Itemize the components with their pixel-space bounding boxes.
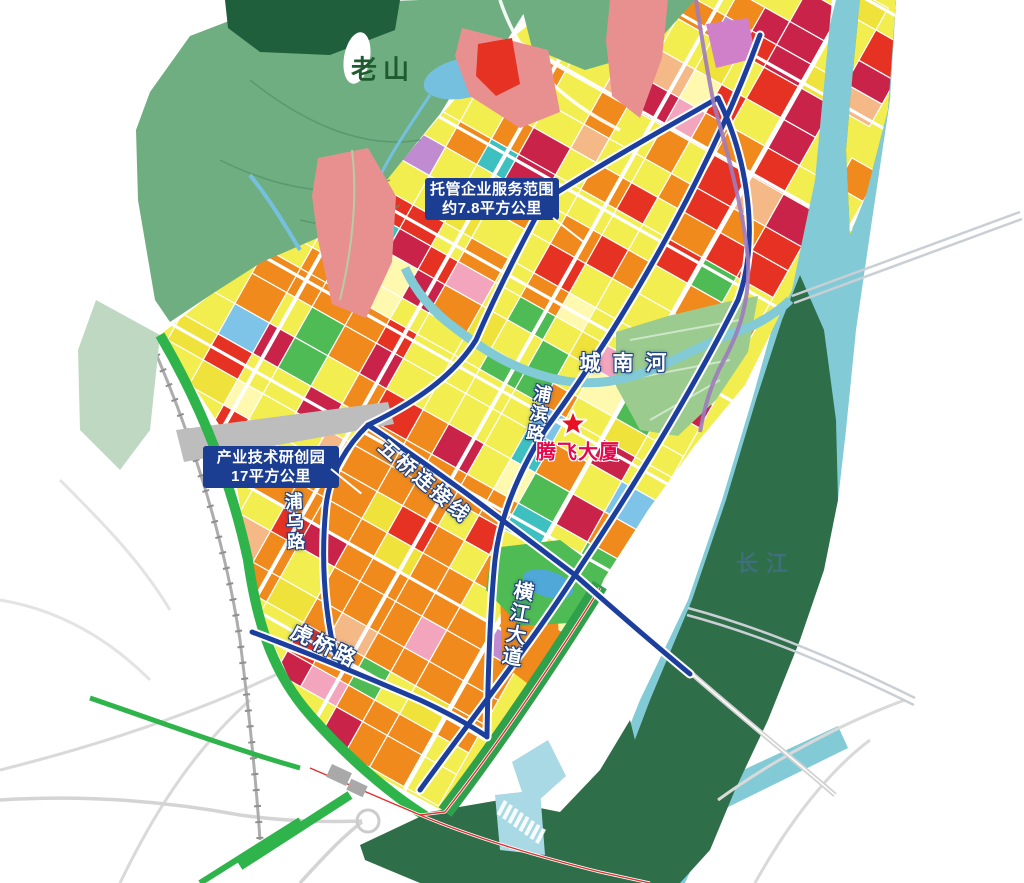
- pale-green-flat: [78, 300, 160, 470]
- map-canvas: [0, 0, 1024, 883]
- street-line: [932, 196, 1024, 883]
- outer-road: [60, 480, 170, 610]
- outer-road: [0, 600, 150, 680]
- outer-road: [300, 822, 362, 883]
- outer-road: [120, 700, 250, 883]
- green-field-band: [200, 820, 300, 883]
- street-line: [0, 0, 175, 626]
- planning-map: 老山 城南河 浦滨路 五桥连接线 浦乌路 虎桥路 横江大道 长江 腾飞大厦 托管…: [0, 0, 1024, 883]
